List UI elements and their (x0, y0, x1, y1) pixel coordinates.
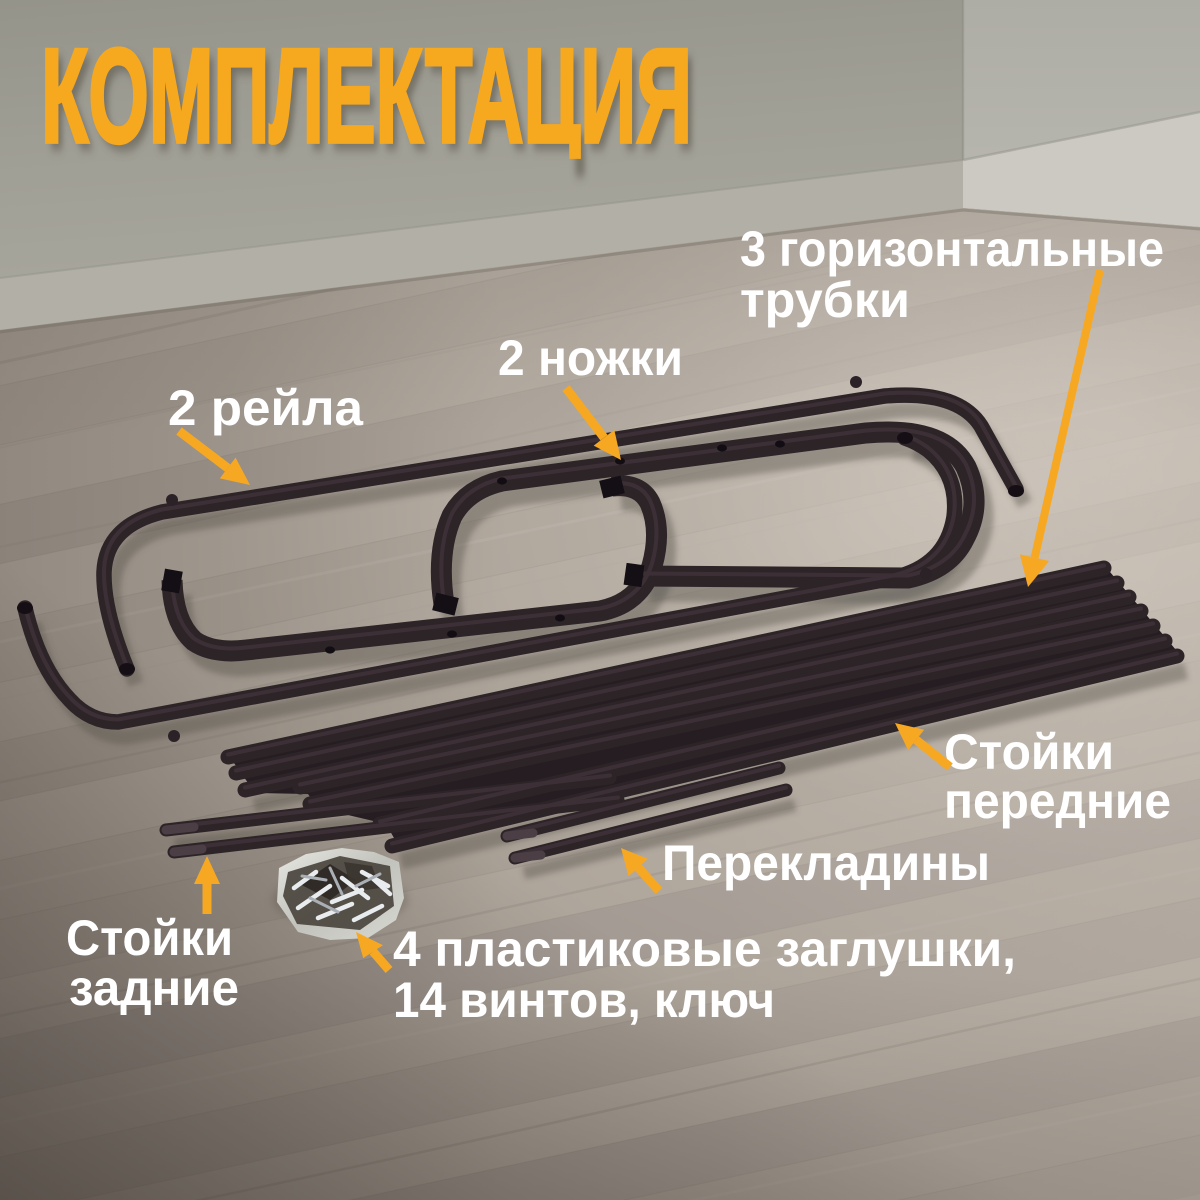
svg-text:Стойки: Стойки (944, 724, 1114, 780)
svg-text:трубки: трубки (740, 272, 910, 328)
svg-text:задние: задние (69, 960, 239, 1016)
svg-text:КОМПЛЕКТАЦИЯ: КОМПЛЕКТАЦИЯ (41, 22, 692, 171)
svg-text:2 ножки: 2 ножки (498, 330, 683, 386)
svg-text:передние: передние (944, 773, 1171, 829)
svg-text:14 винтов, ключ: 14 винтов, ключ (393, 972, 775, 1028)
svg-text:2 рейла: 2 рейла (168, 380, 364, 436)
svg-text:4 пластиковые заглушки,: 4 пластиковые заглушки, (393, 921, 1016, 977)
svg-text:Перекладины: Перекладины (662, 835, 990, 891)
svg-text:Стойки: Стойки (66, 910, 233, 966)
svg-text:3 горизонтальные: 3 горизонтальные (740, 221, 1164, 277)
